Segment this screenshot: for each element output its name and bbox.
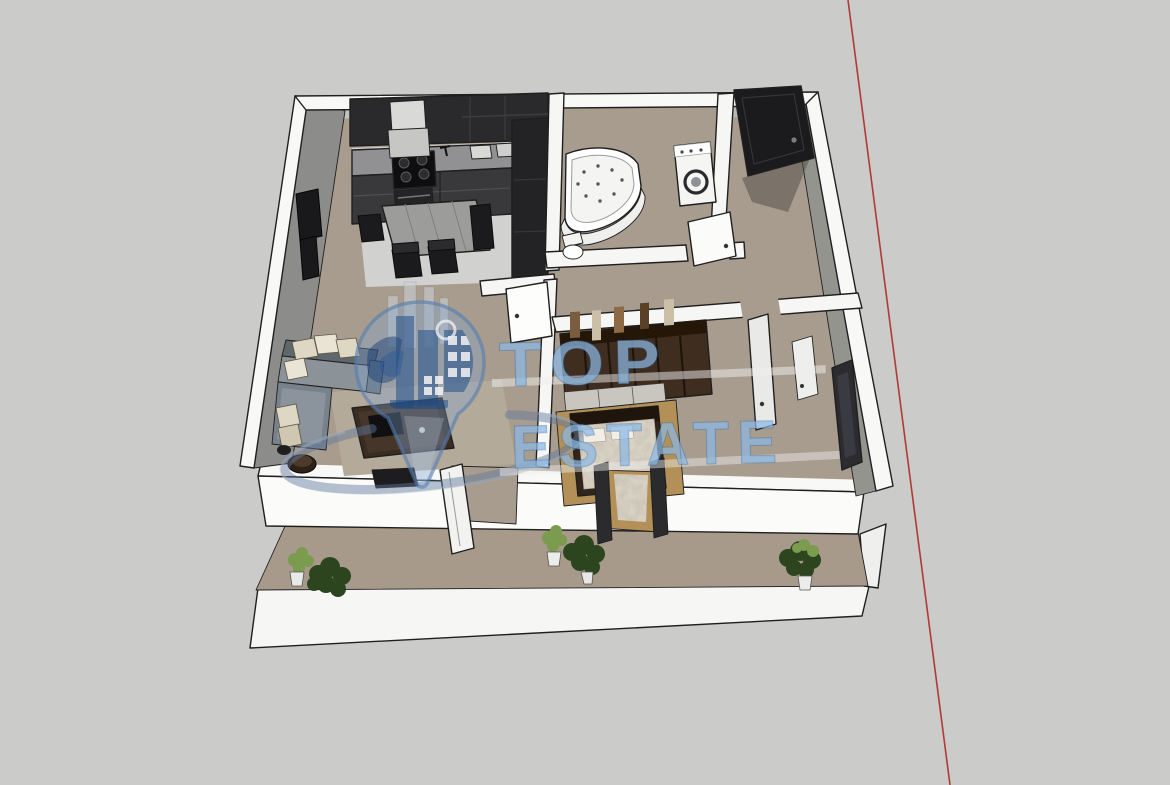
door-handle bbox=[724, 244, 728, 248]
bathroom-door bbox=[688, 212, 736, 266]
door-handle bbox=[800, 384, 804, 388]
door-handle bbox=[515, 314, 519, 318]
apartment-3d-floorplan: TOP ESTATE bbox=[0, 0, 1170, 785]
watermark-subtitle: ESTATE bbox=[511, 408, 786, 481]
bar-stool-seat bbox=[388, 128, 430, 158]
bar-stool bbox=[390, 100, 426, 132]
floorplan-render-canvas: TOP ESTATE bbox=[0, 0, 1170, 785]
watermark-title: TOP bbox=[499, 327, 670, 400]
toilet bbox=[563, 245, 583, 259]
bedding-through-door-texture bbox=[614, 474, 648, 522]
front-door-handle bbox=[791, 137, 796, 142]
door-handle bbox=[760, 402, 764, 406]
tall-cabinet bbox=[512, 118, 548, 280]
floor-pot bbox=[277, 445, 291, 455]
washer-drum bbox=[691, 177, 701, 187]
kitchen-tray bbox=[470, 145, 492, 159]
